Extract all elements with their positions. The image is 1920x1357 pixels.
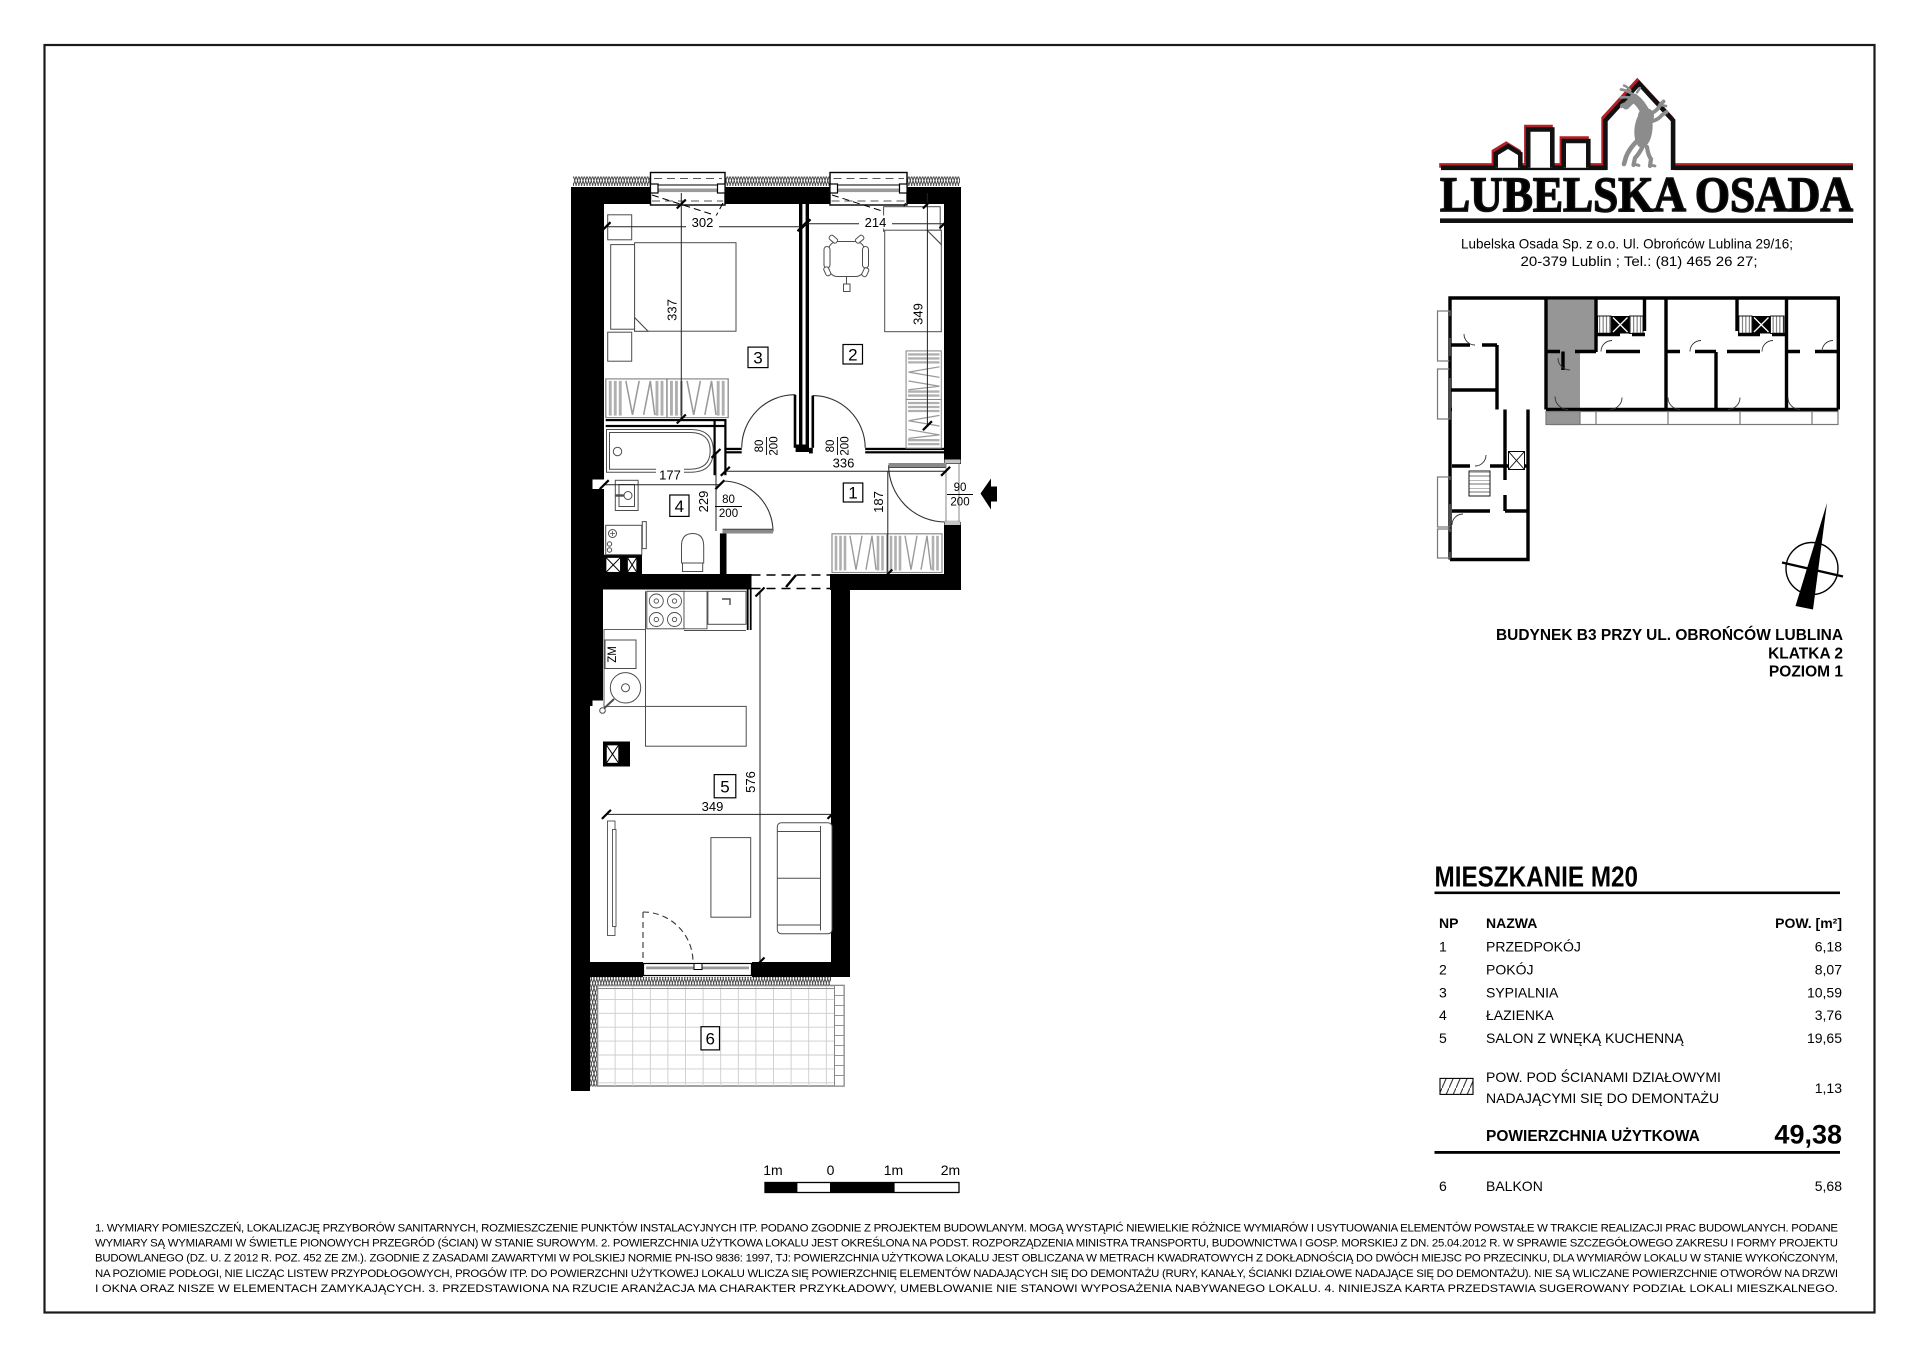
svg-text:90: 90 [954,482,967,494]
svg-text:6: 6 [1439,1178,1447,1194]
svg-text:80: 80 [722,494,735,506]
svg-text:I OKNA ORAZ NISZE W ELEMENTACH: I OKNA ORAZ NISZE W ELEMENTACH ZAMYKAJĄC… [95,1282,1838,1295]
svg-text:BUDYNEK B3 PRZY UL. OBROŃCÓW L: BUDYNEK B3 PRZY UL. OBROŃCÓW LUBLINA [1496,626,1843,644]
svg-text:80: 80 [754,440,766,453]
svg-text:5: 5 [1439,1030,1447,1046]
svg-text:ZM: ZM [607,646,619,663]
svg-text:SYPIALNIA: SYPIALNIA [1486,985,1559,1001]
svg-text:6,18: 6,18 [1815,939,1842,955]
svg-text:349: 349 [911,303,926,325]
svg-text:LUBELSKA OSADA: LUBELSKA OSADA [1440,166,1853,222]
svg-text:20-379 Lublin ; Tel.: (81) 465: 20-379 Lublin ; Tel.: (81) 465 26 27; [1521,253,1758,269]
svg-text:SALON Z WNĘKĄ KUCHENNĄ: SALON Z WNĘKĄ KUCHENNĄ [1486,1030,1684,1046]
svg-text:1. WYMIARY POMIESZCZEŃ, LOKALI: 1. WYMIARY POMIESZCZEŃ, LOKALIZACJĘ PRZY… [95,1221,1838,1234]
svg-text:POW. [m²]: POW. [m²] [1775,915,1842,931]
svg-text:200: 200 [719,508,738,520]
svg-text:3,76: 3,76 [1815,1007,1842,1023]
svg-text:80: 80 [825,440,837,453]
svg-text:2: 2 [1439,962,1447,978]
svg-text:8,07: 8,07 [1815,962,1842,978]
svg-text:POWIERZCHNIA UŻYTKOWA: POWIERZCHNIA UŻYTKOWA [1486,1128,1700,1145]
svg-text:5: 5 [720,778,729,797]
svg-text:POZIOM 1: POZIOM 1 [1769,664,1843,681]
svg-text:576: 576 [743,771,758,793]
svg-text:NAZWA: NAZWA [1486,915,1537,931]
svg-text:Lubelska Osada Sp. z o.o. Ul.: Lubelska Osada Sp. z o.o. Ul. Obrońców L… [1461,236,1793,252]
svg-text:ŁAZIENKA: ŁAZIENKA [1486,1007,1554,1023]
svg-text:302: 302 [692,215,714,230]
svg-text:NP: NP [1439,915,1458,931]
svg-text:1m: 1m [884,1162,903,1178]
svg-text:POKÓJ: POKÓJ [1486,962,1533,978]
svg-text:187: 187 [871,491,886,513]
svg-text:4: 4 [1439,1007,1447,1023]
svg-text:WYMIARY SĄ WYMIARAMI W ŚWIETLE: WYMIARY SĄ WYMIARAMI W ŚWIETLE PIONOWYCH… [95,1237,1838,1250]
svg-text:2: 2 [848,346,857,365]
svg-text:4: 4 [675,497,684,516]
svg-text:PRZEDPOKÓJ: PRZEDPOKÓJ [1486,939,1581,955]
svg-text:49,38: 49,38 [1774,1120,1842,1150]
svg-text:1,13: 1,13 [1815,1080,1842,1096]
svg-text:BUDOWLANEGO (DZ. U. Z 2012 R.: BUDOWLANEGO (DZ. U. Z 2012 R. POZ. 452 Z… [95,1252,1838,1265]
svg-text:229: 229 [696,491,711,513]
svg-text:177: 177 [659,468,681,483]
svg-text:349: 349 [702,799,724,814]
svg-text:1: 1 [848,484,857,503]
svg-text:1m: 1m [763,1162,782,1178]
svg-text:2m: 2m [941,1162,960,1178]
svg-text:200: 200 [769,436,781,455]
svg-text:NADAJĄCYMI SIĘ DO DEMONTAŻU: NADAJĄCYMI SIĘ DO DEMONTAŻU [1486,1089,1719,1106]
svg-text:214: 214 [865,215,887,230]
svg-text:200: 200 [950,497,969,509]
svg-text:200: 200 [840,436,852,455]
svg-text:1: 1 [1439,939,1447,955]
svg-text:BALKON: BALKON [1486,1178,1543,1194]
svg-text:336: 336 [833,456,855,471]
svg-text:19,65: 19,65 [1807,1030,1842,1046]
svg-text:337: 337 [665,299,680,321]
svg-text:MIESZKANIE M20: MIESZKANIE M20 [1435,862,1639,894]
svg-text:10,59: 10,59 [1807,985,1842,1001]
svg-text:KLATKA 2: KLATKA 2 [1768,646,1843,663]
svg-text:POW. POD ŚCIANAMI DZIAŁOWYMI: POW. POD ŚCIANAMI DZIAŁOWYMI [1486,1068,1721,1085]
svg-text:3: 3 [1439,985,1447,1001]
svg-text:5,68: 5,68 [1815,1178,1842,1194]
svg-text:6: 6 [705,1030,714,1049]
svg-text:NA POZIOMIE PODŁOGI, NIE LICZĄ: NA POZIOMIE PODŁOGI, NIE LICZĄC LISTEW P… [95,1267,1838,1280]
svg-text:3: 3 [753,349,762,368]
svg-text:0: 0 [827,1162,835,1178]
